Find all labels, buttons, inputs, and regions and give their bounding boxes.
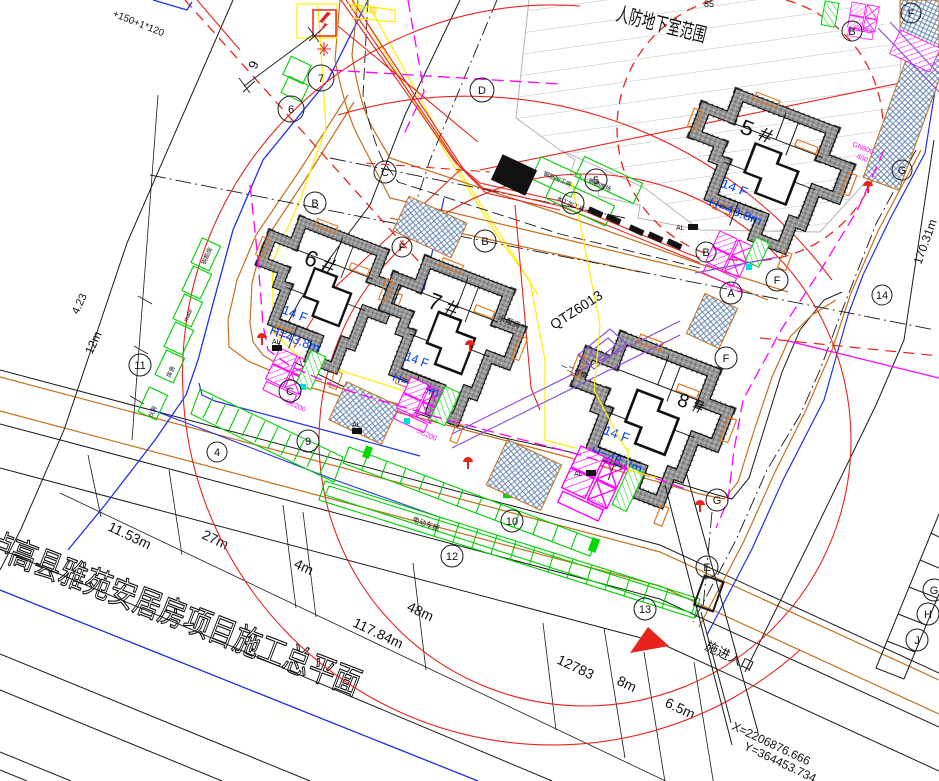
svg-text:6: 6 [288, 104, 294, 116]
svg-text:13: 13 [639, 604, 651, 616]
svg-text:F: F [399, 242, 406, 254]
svg-text:E: E [703, 562, 710, 574]
svg-text:B: B [481, 236, 488, 248]
svg-text:AL: AL [676, 225, 685, 232]
svg-text:F: F [774, 275, 781, 287]
svg-text:AL: AL [272, 339, 281, 346]
svg-text:10: 10 [506, 516, 518, 528]
svg-text:A: A [727, 288, 735, 300]
svg-text:11: 11 [134, 360, 145, 372]
svg-text:G: G [930, 585, 939, 597]
svg-text:B: B [702, 247, 709, 259]
svg-text:B: B [848, 26, 855, 38]
svg-text:12: 12 [446, 551, 458, 563]
svg-text:14: 14 [876, 290, 888, 302]
svg-text:85: 85 [704, 0, 714, 9]
svg-text:B: B [311, 198, 318, 210]
svg-text:G: G [898, 165, 907, 177]
svg-text:9: 9 [305, 436, 311, 448]
svg-text:G: G [713, 495, 722, 507]
svg-text:C: C [286, 386, 294, 398]
svg-text:H: H [924, 609, 932, 621]
svg-text:F: F [723, 353, 730, 365]
svg-text:AL: AL [574, 471, 583, 478]
svg-text:F: F [908, 8, 915, 20]
svg-text:AL: AL [352, 422, 361, 429]
svg-text:7: 7 [318, 73, 324, 85]
svg-text:D: D [478, 85, 486, 97]
svg-text:J: J [914, 635, 920, 647]
svg-text:4: 4 [214, 447, 220, 459]
svg-text:C: C [381, 167, 389, 179]
